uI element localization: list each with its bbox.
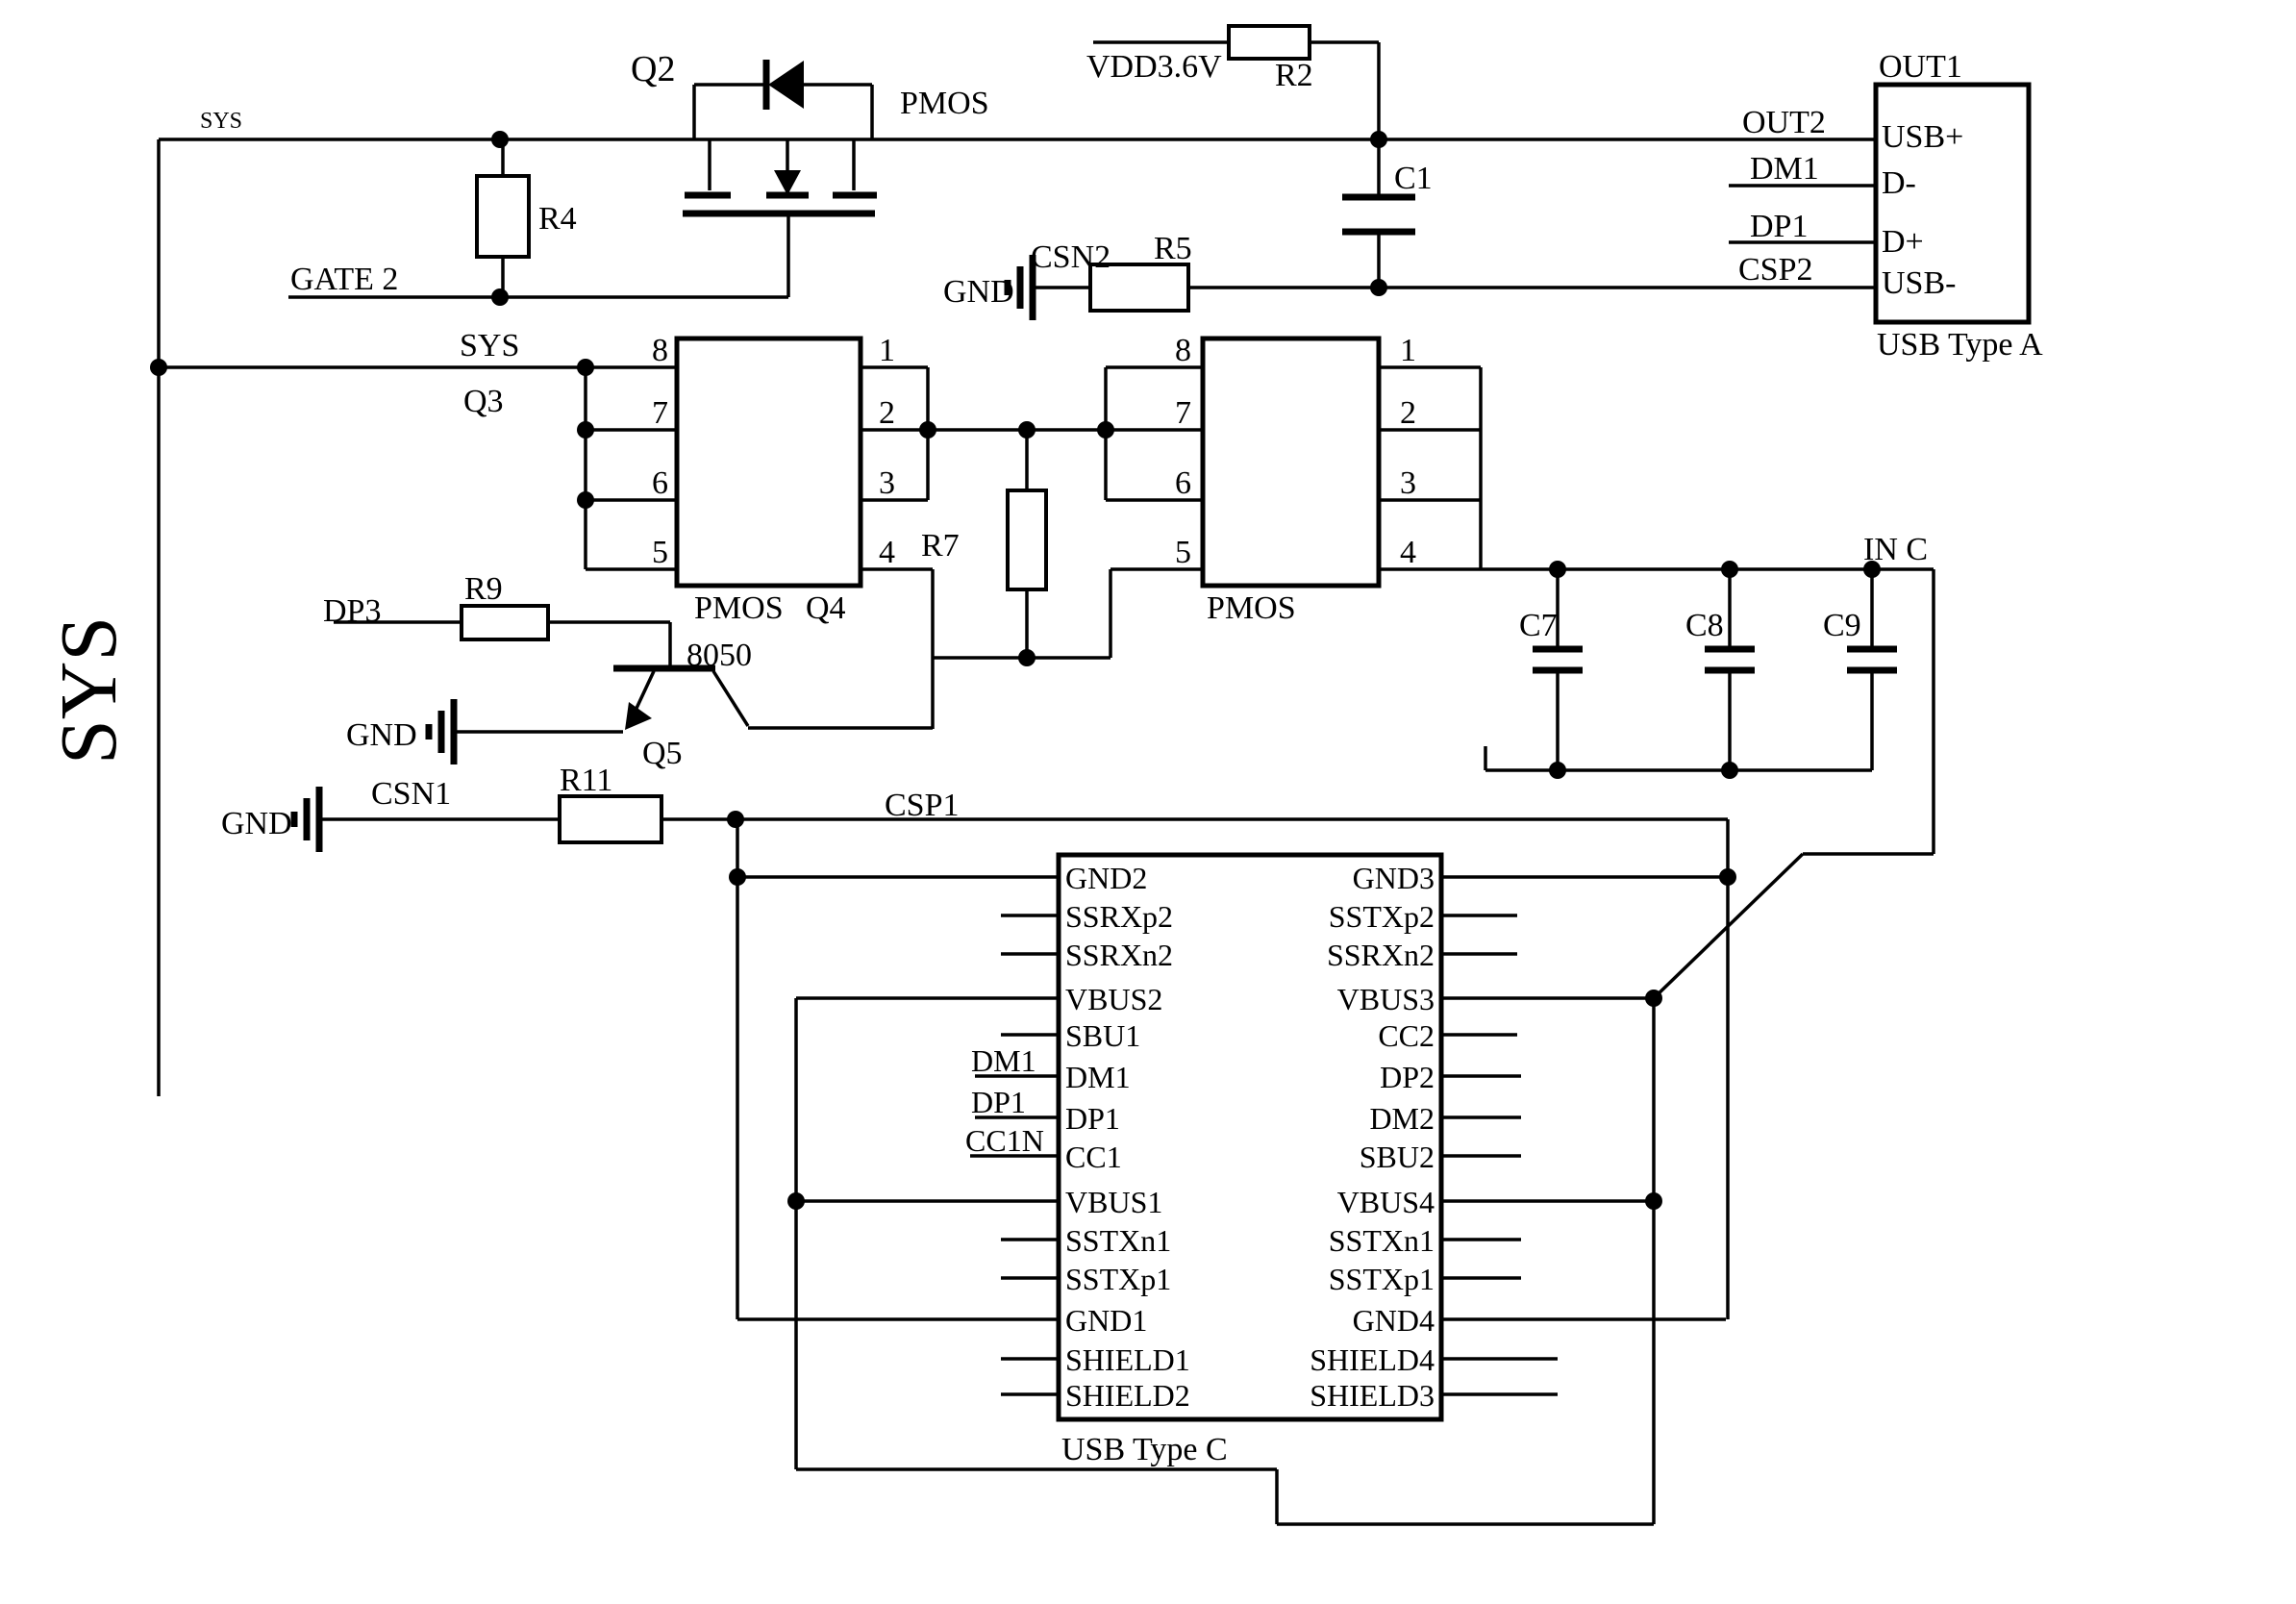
usbc-ext-cc1n: CC1N	[965, 1123, 1044, 1158]
diode-triangle	[768, 61, 804, 109]
usba-pin-usbminus: USB-	[1882, 265, 1956, 301]
label-dp3: DP3	[323, 593, 381, 629]
q2-arrowhead	[774, 170, 801, 195]
usba-pin-dplus: D+	[1882, 224, 1924, 260]
usbc-ext-dm1: DM1	[971, 1043, 1036, 1078]
usbc-left-shield2: SHIELD2	[1065, 1378, 1190, 1413]
label-c9: C9	[1823, 608, 1861, 643]
ic1-pin8: 8	[652, 333, 668, 368]
usbc-ext-dp1: DP1	[971, 1085, 1026, 1119]
ic2-pin1: 1	[1400, 333, 1416, 368]
wire-q5	[454, 671, 933, 732]
ic1-pin4: 4	[879, 535, 895, 570]
wire-gnd3-gnd4	[1441, 819, 1728, 1319]
usbc-right-sstxp2: SSTXp2	[1329, 899, 1435, 934]
ic1-pin6: 6	[652, 465, 668, 501]
c7-plates	[1533, 649, 1583, 670]
label-c8: C8	[1685, 608, 1724, 643]
ic2-pin8: 8	[1175, 333, 1191, 368]
usbc-right-vbus4: VBUS4	[1337, 1185, 1435, 1219]
usbc-right-sbu2: SBU2	[1360, 1140, 1435, 1174]
schematic-canvas: SYS Q2 PMOS VDD3.6V R2 C1 OUT1 OUT2 DM1 …	[0, 0, 2296, 1604]
label-r4: R4	[538, 201, 577, 237]
usbc-left-gnd2: GND2	[1065, 861, 1147, 895]
label-sys-rail: SYS	[200, 109, 242, 134]
label-gnd-csn1: GND	[221, 806, 292, 841]
label-csn1: CSN1	[371, 776, 451, 812]
wire-ic2-right	[1379, 367, 1934, 569]
resistor-r9	[462, 606, 548, 639]
label-q5-type: 8050	[686, 638, 752, 673]
usbc-left-sbu1: SBU1	[1065, 1018, 1140, 1053]
label-dm1-net: DM1	[1750, 151, 1819, 187]
gnd-symbol-q5	[429, 699, 454, 764]
label-csn2: CSN2	[1031, 239, 1111, 275]
label-gnd-csn2: GND	[943, 274, 1014, 310]
q2-mosfet-bars	[683, 195, 877, 213]
resistor-r11	[560, 796, 661, 842]
usbc-left-dp1: DP1	[1065, 1101, 1120, 1136]
ic1-body	[677, 338, 861, 586]
resistor-r7	[1008, 490, 1046, 589]
ic1-pin7: 7	[652, 395, 668, 431]
label-r7: R7	[921, 528, 960, 564]
usbc-left-sstxn1: SSTXn1	[1065, 1223, 1171, 1258]
label-r2: R2	[1275, 58, 1313, 93]
c1-plates	[1342, 197, 1415, 232]
usbc-right-vbus3: VBUS3	[1337, 982, 1435, 1016]
ic2-pin7: 7	[1175, 395, 1191, 431]
schematic-page: SYS Q2 PMOS VDD3.6V R2 C1 OUT1 OUT2 DM1 …	[0, 0, 2296, 1604]
usbc-left-gnd1: GND1	[1065, 1303, 1147, 1338]
ic2-body	[1203, 338, 1379, 586]
usba-pin-usbplus: USB+	[1882, 119, 1963, 155]
label-out1: OUT1	[1879, 49, 1962, 85]
ic2-pin3: 3	[1400, 465, 1416, 501]
label-r9: R9	[464, 571, 503, 607]
usbc-right-sstxn1: SSTXn1	[1329, 1223, 1435, 1258]
usbc-right-dp2: DP2	[1380, 1060, 1435, 1094]
ic1-pin5: 5	[652, 535, 668, 570]
ic2-pin5: 5	[1175, 535, 1191, 570]
label-sys-mid: SYS	[460, 328, 519, 363]
label-vdd: VDD3.6V	[1086, 49, 1222, 85]
gnd-symbol-csn1	[294, 787, 319, 852]
c8-plates	[1705, 649, 1755, 670]
wire-mid-node	[933, 569, 1203, 658]
resistor-r2	[1229, 26, 1310, 59]
usbc-right-dm2: DM2	[1369, 1101, 1435, 1136]
wire-vbus34	[1441, 998, 1654, 1201]
usbc-right-sstxp1: SSTXp1	[1329, 1262, 1435, 1296]
ic2-pin6: 6	[1175, 465, 1191, 501]
usbc-right-gnd4: GND4	[1353, 1303, 1435, 1338]
usba-pin-dminus: D-	[1882, 165, 1916, 201]
label-c7: C7	[1519, 608, 1558, 643]
usbc-left-shield1: SHIELD1	[1065, 1342, 1190, 1377]
label-q2: Q2	[631, 49, 675, 89]
usbc-right-shield3: SHIELD3	[1310, 1378, 1435, 1413]
label-q3: Q3	[463, 384, 504, 419]
label-r11: R11	[560, 763, 612, 798]
ic2-pin4: 4	[1400, 535, 1416, 570]
ic1-type: PMOS	[694, 590, 784, 626]
label-q2-type: PMOS	[900, 86, 989, 121]
usbc-left-sstxp1: SSTXp1	[1065, 1262, 1171, 1296]
label-usb-type-c: USB Type C	[1061, 1432, 1228, 1467]
ic1-pin2: 2	[879, 395, 895, 431]
usbc-right-shield4: SHIELD4	[1310, 1342, 1435, 1377]
usbc-left-cc1: CC1	[1065, 1140, 1122, 1174]
label-gnd-q5: GND	[346, 717, 417, 753]
wire-usbc-right-stubs	[1441, 915, 1558, 1394]
usbc-left-vbus1: VBUS1	[1065, 1185, 1162, 1219]
usbc-left-ssrxn2: SSRXn2	[1065, 938, 1173, 972]
usbc-right-cc2: CC2	[1378, 1018, 1435, 1053]
ic1-pin1: 1	[879, 333, 895, 368]
label-out2: OUT2	[1742, 105, 1826, 140]
ic2-type: PMOS	[1207, 590, 1296, 626]
label-in-c: IN C	[1863, 532, 1928, 567]
usbc-right-ssrxn2: SSRXn2	[1327, 938, 1435, 972]
label-csp1: CSP1	[885, 788, 960, 823]
label-usb-type-a: USB Type A	[1877, 327, 2043, 363]
label-c1: C1	[1394, 161, 1433, 196]
c9-plates	[1847, 649, 1897, 670]
label-dp1-net: DP1	[1750, 209, 1808, 244]
label-sys-big: SYS	[44, 616, 134, 764]
usbc-left-ssrxp2: SSRXp2	[1065, 899, 1173, 934]
usbc-right-gnd3: GND3	[1353, 861, 1435, 895]
resistor-r4	[477, 176, 529, 257]
label-q5: Q5	[642, 736, 683, 771]
label-csp2: CSP2	[1738, 252, 1813, 288]
usbc-left-vbus2: VBUS2	[1065, 982, 1162, 1016]
label-gate2: GATE 2	[290, 262, 398, 297]
ic1-ref: Q4	[806, 590, 846, 626]
label-r5: R5	[1154, 231, 1192, 266]
usbc-left-dm1: DM1	[1065, 1060, 1131, 1094]
ic1-pin3: 3	[879, 465, 895, 501]
ic2-pin2: 2	[1400, 395, 1416, 431]
